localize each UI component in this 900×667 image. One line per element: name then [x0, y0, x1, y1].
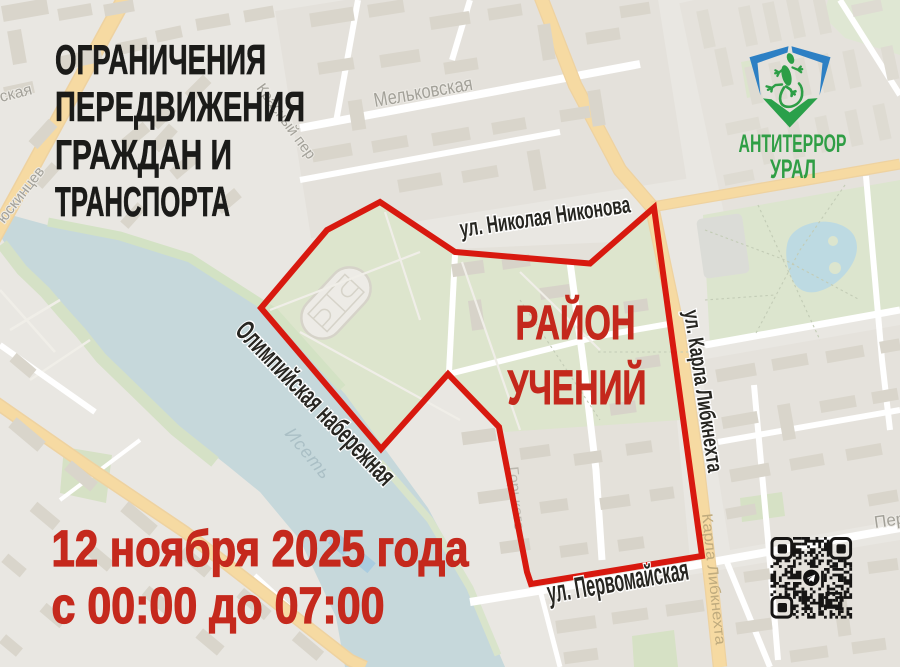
svg-text:с 00:00 до 07:00: с 00:00 до 07:00: [52, 577, 385, 634]
svg-text:12 ноября 2025 года: 12 ноября 2025 года: [52, 520, 470, 577]
svg-text:ГРАЖДАН И: ГРАЖДАН И: [55, 131, 232, 178]
svg-text:Пер: Пер: [873, 509, 900, 532]
svg-text:РАЙОН: РАЙОН: [516, 295, 636, 350]
svg-text:УЧЕНИЙ: УЧЕНИЙ: [508, 360, 647, 415]
svg-text:ПЕРЕДВИЖЕНИЯ: ПЕРЕДВИЖЕНИЯ: [55, 83, 305, 130]
svg-text:УРАЛ: УРАЛ: [770, 154, 816, 184]
svg-text:ОГРАНИЧЕНИЯ: ОГРАНИЧЕНИЯ: [55, 36, 266, 83]
svg-text:ТРАНСПОРТА: ТРАНСПОРТА: [55, 178, 230, 225]
